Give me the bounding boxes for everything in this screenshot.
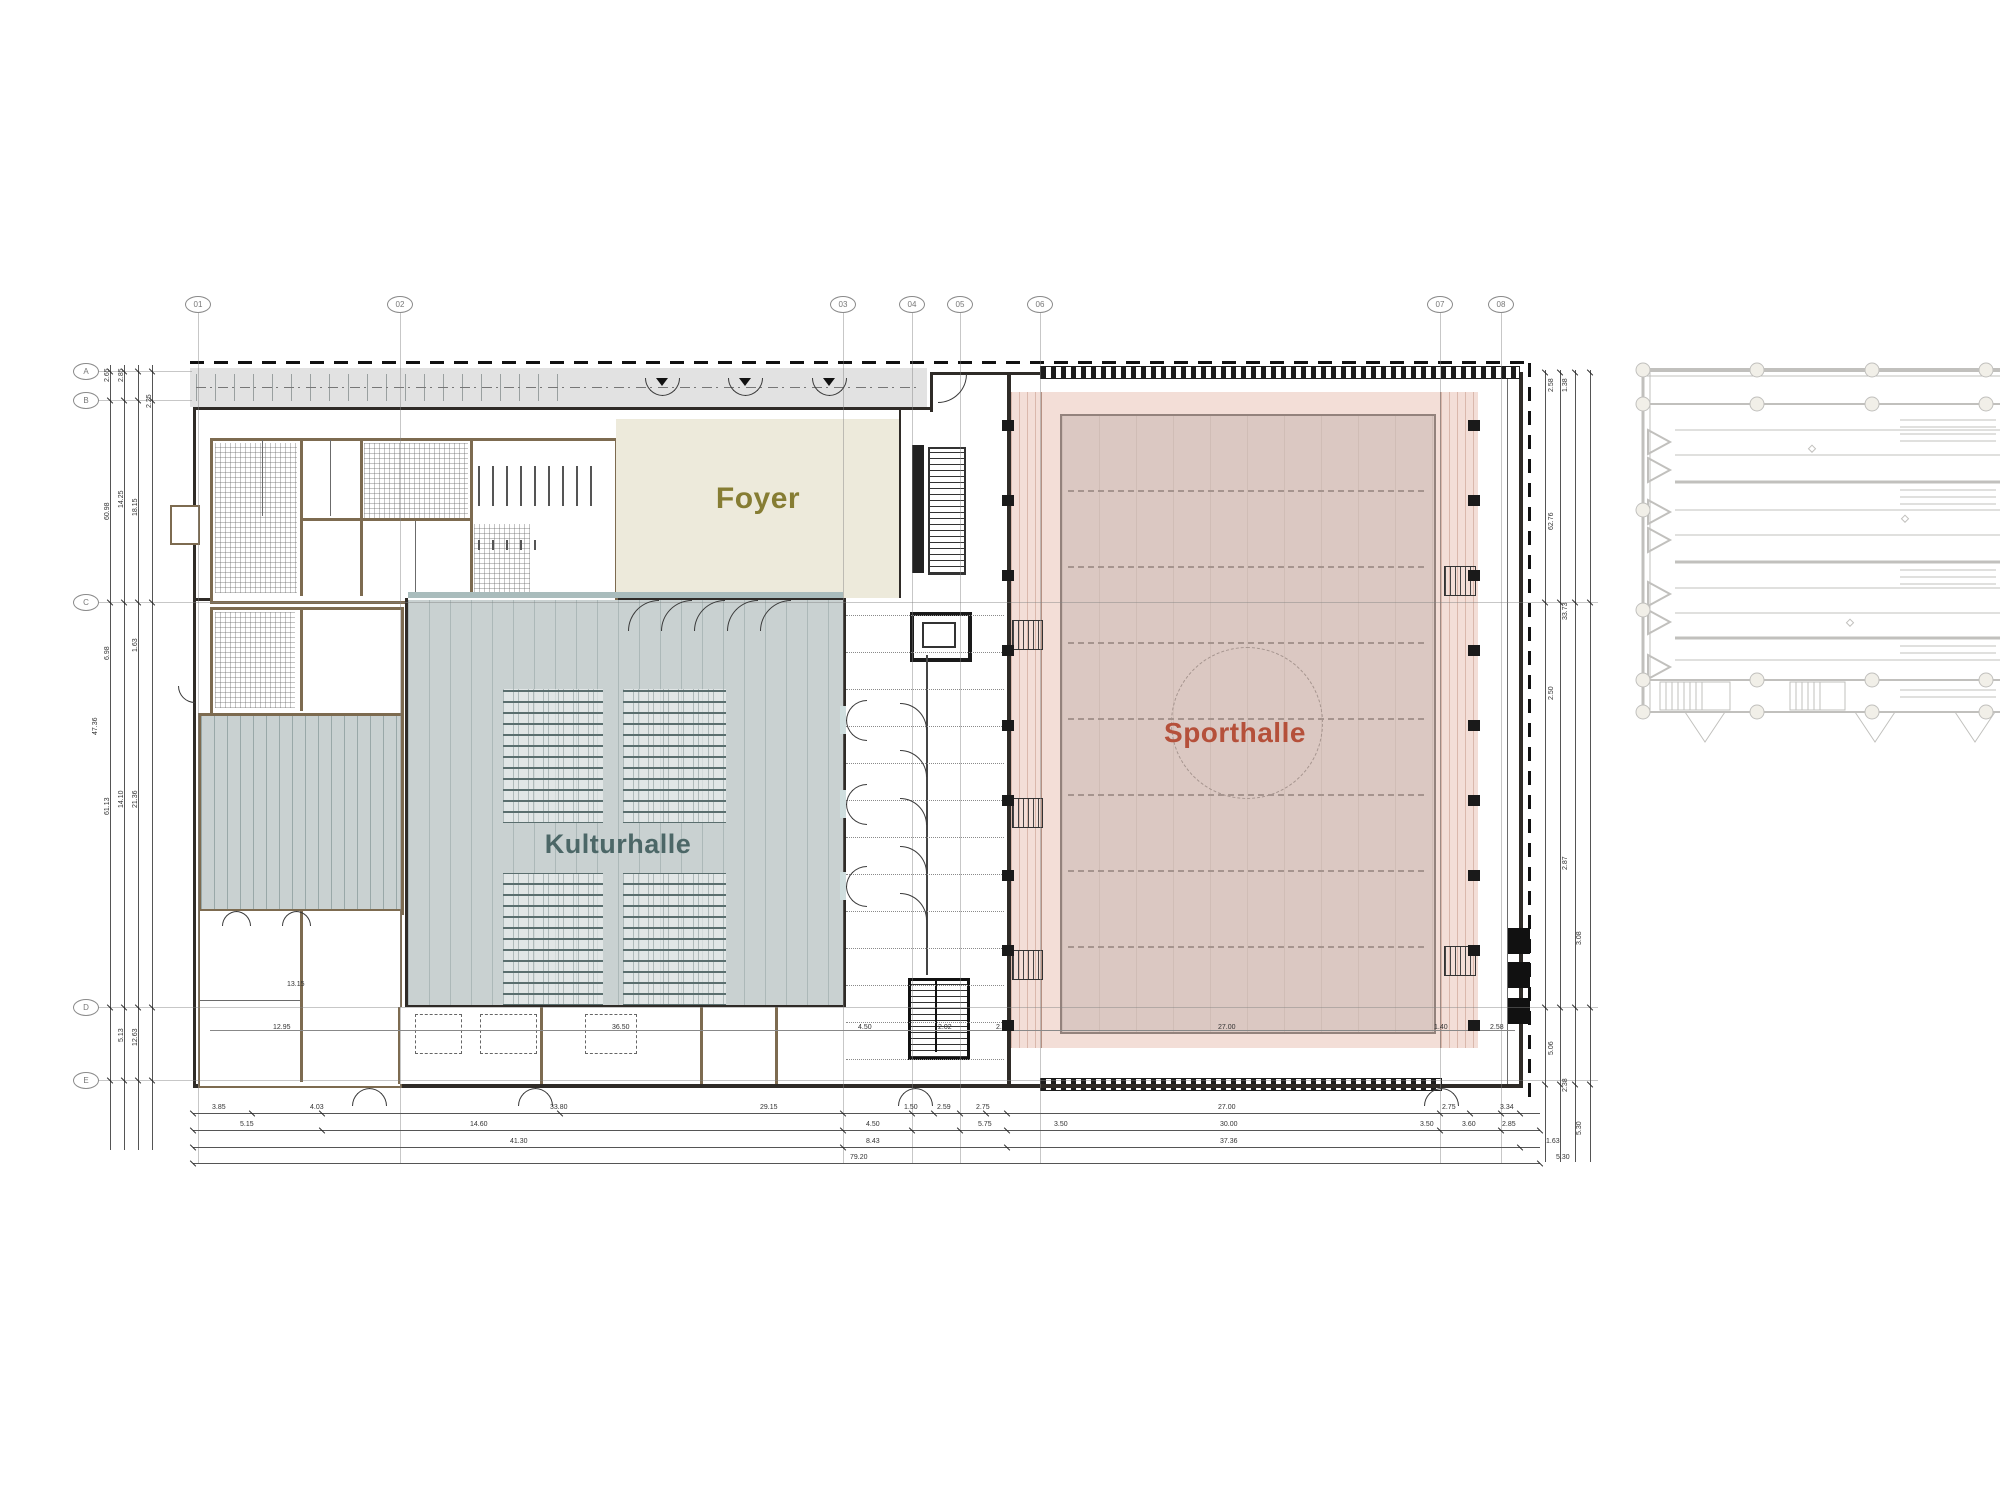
dim-label: 2.59 — [937, 1104, 951, 1112]
door-gap — [840, 872, 846, 900]
locker-row — [478, 466, 596, 506]
grid-bubble-column: 04 — [899, 296, 925, 313]
equipment-niche — [1508, 998, 1530, 1024]
door-arc — [369, 1088, 387, 1106]
corridor-dotted-line — [846, 763, 1004, 764]
grid-bubble-row: B — [73, 392, 99, 409]
partition — [300, 911, 303, 1082]
dim-label-right: 2.38 — [1562, 1078, 1570, 1092]
wall-pilaster — [1002, 495, 1014, 506]
corridor-dotted-line — [846, 615, 1004, 616]
door-arc — [898, 1088, 916, 1106]
dim-label: 2.75 — [976, 1104, 990, 1112]
partition — [200, 1000, 300, 1001]
door-arc — [846, 720, 867, 741]
grid-bubble-column: 01 — [185, 296, 211, 313]
dim-label: 3.85 — [212, 1104, 226, 1112]
dim-label: 5.15 — [240, 1121, 254, 1129]
fixture-line — [262, 440, 263, 516]
door-arc — [1441, 1088, 1459, 1106]
tiled-room-4 — [215, 612, 295, 708]
dim-label-left: 47.36 — [92, 717, 100, 735]
wall-pilaster — [1468, 795, 1480, 806]
corridor-dotted-line — [846, 800, 1004, 801]
dim-label: 3.34 — [1500, 1104, 1514, 1112]
equipment-niche — [1508, 962, 1530, 988]
dim-label-left: 21.36 — [132, 790, 140, 808]
dim-label-left: 1.63 — [132, 638, 140, 652]
dim-label-right: 2.58 — [1548, 378, 1556, 392]
grid-bubble-column: 06 — [1027, 296, 1053, 313]
equipment-niche — [1508, 928, 1530, 954]
kulturhalle-top-band — [408, 592, 843, 598]
door-arc — [352, 1088, 370, 1106]
dim-label: 3.60 — [1462, 1121, 1476, 1129]
door-arc — [846, 866, 867, 887]
dim-label-right: 62.76 — [1548, 512, 1556, 530]
door-arc — [900, 798, 927, 825]
entrance-triangle — [739, 378, 751, 386]
dim-chain-left — [152, 365, 153, 1150]
tiled-room-3 — [474, 524, 530, 594]
corridor-dotted-line — [846, 948, 1004, 949]
court-line — [1068, 718, 1424, 720]
dim-label: 4.03 — [310, 1104, 324, 1112]
dim-label-left: 14.10 — [118, 790, 126, 808]
partition — [775, 1007, 778, 1084]
dim-label: 41.30 — [510, 1138, 528, 1146]
dim-chain-right — [1590, 370, 1591, 1162]
dim-label-right: 5.30 — [1576, 1121, 1584, 1135]
grid-bubble-column: 05 — [947, 296, 973, 313]
grid-line-row — [98, 602, 1598, 603]
corridor-dotted-line — [846, 652, 1004, 653]
dim-label: 5.75 — [978, 1121, 992, 1129]
grid-line-row — [98, 371, 192, 372]
grid-bubble-column: 03 — [830, 296, 856, 313]
dim-label-right: 2.87 — [1562, 856, 1570, 870]
corridor-dotted-line — [846, 837, 1004, 838]
dim-label: 8.43 — [866, 1138, 880, 1146]
dim-label-interior: 13.15 — [287, 981, 305, 989]
seating-block — [623, 689, 726, 823]
grid-line-row — [98, 1007, 1598, 1008]
wall-pilaster — [1002, 645, 1014, 656]
sport-north-wall-band — [1040, 366, 1520, 379]
door-arc — [846, 784, 867, 805]
grid-line-column — [1040, 311, 1041, 1163]
court-line — [1068, 566, 1424, 568]
wall-pilaster — [1468, 570, 1480, 581]
wall-bars — [1012, 798, 1043, 828]
partition — [470, 440, 473, 596]
wall-pilaster — [1468, 945, 1480, 956]
door-arc — [900, 703, 927, 730]
grid-bubble-row: D — [73, 999, 99, 1016]
dim-chain-bottom — [193, 1163, 1540, 1164]
wall-pilaster — [1002, 1020, 1014, 1031]
door-gap — [840, 706, 846, 734]
foyer-label: Foyer — [658, 482, 858, 516]
dim-label-left: 5.13 — [118, 1028, 126, 1042]
stair-shaft-wall — [912, 445, 924, 573]
door-arc — [846, 804, 867, 825]
dim-label-right: 5.06 — [1548, 1041, 1556, 1055]
kulturhalle-label: Kulturhalle — [478, 829, 758, 860]
dim-chain-right — [1560, 370, 1561, 1162]
dim-label: 2.85 — [1502, 1121, 1516, 1129]
dim-label: 27.00 — [1218, 1104, 1236, 1112]
dim-label-left: 61.13 — [104, 797, 112, 815]
corridor-dotted-line — [846, 689, 1004, 690]
court-line — [1068, 490, 1424, 492]
dim-label-left: 2.25 — [146, 394, 154, 408]
grid-line-column — [1440, 311, 1441, 1163]
grid-bubble-row: A — [73, 363, 99, 380]
storage-mark — [415, 1014, 462, 1054]
dim-chain-bottom — [193, 1130, 1540, 1131]
dim-label-right: 3.08 — [1576, 931, 1584, 945]
floor-plan-canvas: Foyer Kulturhalle Sporthalle — [0, 0, 2000, 1500]
door-arc — [846, 700, 867, 721]
dim-label: 79.20 — [850, 1154, 868, 1162]
partition — [540, 1007, 543, 1084]
partition — [300, 609, 303, 711]
dim-chain-bottom — [193, 1113, 1540, 1114]
dim-chain-bottom — [193, 1147, 1540, 1148]
wall-pilaster — [1002, 720, 1014, 731]
wall-pilaster — [1002, 795, 1014, 806]
partition — [700, 1007, 703, 1084]
dim-chain-left — [110, 365, 111, 1150]
door-gap — [840, 790, 846, 818]
wall-pilaster — [1468, 645, 1480, 656]
dim-label-interior: 36.50 — [612, 1024, 630, 1032]
canopy-centerline — [196, 387, 921, 388]
dim-label: 3.50 — [1420, 1121, 1434, 1129]
dim-chain-right — [1545, 370, 1546, 1162]
grid-line-column — [198, 311, 199, 1163]
door-arc — [900, 893, 927, 920]
dim-label-left: 60.98 — [104, 502, 112, 520]
seating-block — [503, 689, 603, 823]
dim-label-left: 12.63 — [132, 1028, 140, 1046]
west-annex — [170, 505, 200, 545]
door-arc — [535, 1088, 553, 1106]
fixture-line — [330, 440, 331, 516]
dim-label-right: 33.73 — [1562, 602, 1570, 620]
storage-mark — [585, 1014, 637, 1054]
foyer-east-wall — [899, 409, 901, 598]
fixture-line — [415, 521, 416, 594]
wall-bars — [1012, 950, 1043, 980]
wall-pilaster — [1002, 570, 1014, 581]
storage-mark — [480, 1014, 537, 1054]
grid-bubble-column: 08 — [1488, 296, 1514, 313]
sport-south-wall — [1009, 1084, 1523, 1088]
door-arc — [915, 1088, 933, 1106]
dim-label-left: 6.98 — [104, 646, 112, 660]
seating-block — [503, 873, 603, 1005]
stage-area — [198, 713, 404, 915]
dim-label: 3.50 — [1054, 1121, 1068, 1129]
dim-label: 37.36 — [1220, 1138, 1238, 1146]
dim-label-interior: 2.58 — [1490, 1024, 1504, 1032]
seating-block — [623, 873, 726, 1005]
wall-pilaster — [1468, 1020, 1480, 1031]
door-arc — [900, 750, 927, 777]
dim-label-interior: 2.02 — [938, 1024, 952, 1032]
wall-pilaster — [1468, 870, 1480, 881]
dim-label-interior: 4.50 — [858, 1024, 872, 1032]
grid-bubble-column: 07 — [1427, 296, 1453, 313]
dim-label-interior: 1.40 — [1434, 1024, 1448, 1032]
dim-label-left: 14.25 — [118, 490, 126, 508]
elevator-car — [922, 622, 956, 648]
grid-line-column — [912, 311, 913, 1163]
grid-bubble-row: E — [73, 1072, 99, 1089]
corridor-dotted-line — [846, 1022, 1004, 1023]
kulturhalle-west-wall — [405, 598, 408, 1007]
dim-label-interior: 12.95 — [273, 1024, 291, 1032]
dim-label: 1.63 — [1546, 1138, 1560, 1146]
dim-label-left: 2.65 — [104, 368, 112, 382]
stair-rail — [935, 980, 937, 1052]
grid-line-row — [98, 1080, 1598, 1081]
court-line — [1068, 794, 1424, 796]
dim-label-left: 18.15 — [132, 498, 140, 516]
wall-pilaster — [1002, 945, 1014, 956]
tiled-room-2 — [364, 443, 468, 519]
court-line — [1068, 946, 1424, 948]
dim-label-right: 2.50 — [1548, 686, 1556, 700]
wall-pilaster — [1468, 720, 1480, 731]
entrance-triangle — [656, 378, 668, 386]
grid-line-column — [1501, 311, 1502, 1163]
dim-label: 4.50 — [866, 1121, 880, 1129]
corridor-dotted-line — [846, 874, 1004, 875]
corridor-dotted-line — [846, 1059, 1004, 1060]
dim-label-left: 2.85 — [118, 368, 126, 382]
wall-pilaster — [1002, 870, 1014, 881]
partition — [303, 518, 470, 521]
tiled-room-1 — [215, 443, 297, 593]
wall-pilaster — [1468, 495, 1480, 506]
entrance-triangle — [823, 378, 835, 386]
door-arc — [518, 1088, 536, 1106]
court-line — [1068, 870, 1424, 872]
grid-bubble-row: C — [73, 594, 99, 611]
door-arc — [938, 374, 967, 403]
corridor-partition — [926, 655, 928, 975]
wall-pilaster — [1002, 420, 1014, 431]
wall-bars — [1012, 620, 1043, 650]
court-line — [1068, 642, 1424, 644]
grid-line-row — [98, 400, 192, 401]
dim-chain-right — [1575, 370, 1576, 1162]
grid-line-column — [960, 311, 961, 1163]
north-facade-wall — [193, 407, 930, 410]
door-arc — [900, 846, 927, 873]
vestibule-wall — [930, 372, 933, 412]
grid-line-column — [400, 311, 401, 1163]
dim-label: 29.15 — [760, 1104, 778, 1112]
dim-label-right: 1.38 — [1562, 378, 1570, 392]
adjacent-building-ghost — [1600, 360, 2000, 750]
bench-row — [478, 540, 538, 550]
dim-label: 30.00 — [1220, 1121, 1238, 1129]
grid-line-column — [843, 311, 844, 1163]
dim-label: 14.60 — [470, 1121, 488, 1129]
sporthalle-label: Sporthalle — [1115, 717, 1355, 749]
wall-pilaster — [1468, 420, 1480, 431]
corridor-dotted-line — [846, 985, 1004, 986]
door-arc — [846, 886, 867, 907]
dim-label-interior: 27.00 — [1218, 1024, 1236, 1032]
dim-label: 5.30 — [1556, 1154, 1570, 1162]
grid-bubble-column: 02 — [387, 296, 413, 313]
property-line-top — [190, 361, 1530, 364]
door-arc — [178, 686, 195, 703]
